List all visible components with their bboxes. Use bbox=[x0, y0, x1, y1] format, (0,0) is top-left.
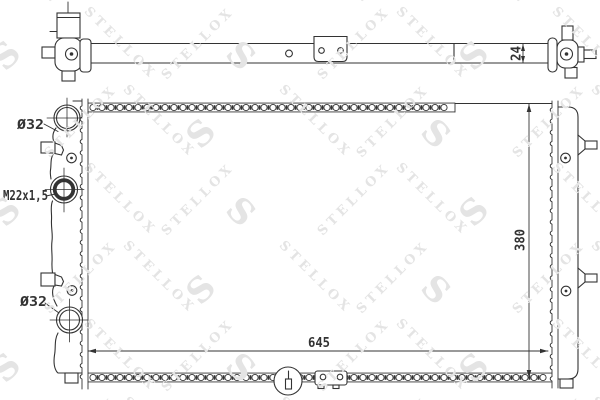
bleed-screw-upper-left bbox=[67, 153, 77, 163]
mounting-flange bbox=[548, 38, 557, 72]
bottom-bracket bbox=[315, 371, 347, 389]
left-foot bbox=[65, 373, 78, 383]
bottom-tab bbox=[62, 71, 75, 81]
right-end-assembly bbox=[548, 26, 596, 78]
front-view: 645 380 Ø32 M22x1,5 Ø32 bbox=[3, 98, 597, 395]
bracket-hole bbox=[337, 374, 343, 380]
bleed-screw-lower-right bbox=[561, 286, 571, 296]
arrowhead bbox=[527, 104, 532, 112]
dimension-depth: 24 bbox=[509, 44, 526, 63]
fitting-pipe-upper bbox=[585, 141, 597, 149]
dim-width-label: 645 bbox=[308, 335, 330, 351]
mounting-flange bbox=[80, 39, 91, 72]
bracket-hole bbox=[319, 48, 325, 54]
top-view-bracket bbox=[314, 37, 347, 62]
right-joint-strip bbox=[550, 101, 558, 388]
bleed-screw-lower-left bbox=[67, 286, 77, 296]
filler-neck-assembly bbox=[42, 2, 91, 81]
arrowhead bbox=[88, 349, 96, 354]
connector-pipe bbox=[584, 50, 596, 59]
mounting-hole bbox=[286, 50, 293, 57]
radiator-technical-drawing: 24 bbox=[0, 0, 600, 400]
side-tab bbox=[42, 47, 55, 58]
fitting-flange-upper bbox=[578, 135, 585, 155]
arrowhead bbox=[540, 349, 548, 354]
drawing-canvas: 24 bbox=[0, 0, 600, 400]
boss bbox=[55, 143, 64, 155]
top-tab bbox=[562, 26, 573, 40]
drain-plug-detail bbox=[274, 367, 302, 395]
dimension-height: 380 bbox=[513, 104, 532, 378]
thread-label: M22x1,5 bbox=[3, 188, 48, 204]
right-tank bbox=[558, 107, 597, 388]
bracket-hole bbox=[338, 48, 344, 54]
filler-neck bbox=[57, 13, 80, 38]
right-foot bbox=[560, 379, 573, 388]
port-top-label: Ø32 bbox=[16, 117, 44, 133]
dimension-width: 645 bbox=[88, 335, 548, 353]
dim-depth-label: 24 bbox=[509, 46, 525, 61]
port-bottom-label: Ø32 bbox=[19, 294, 47, 310]
left-tab-upper bbox=[41, 142, 55, 153]
fitting-pipe-lower bbox=[585, 274, 597, 282]
boss bbox=[55, 275, 64, 287]
bottom-tab bbox=[565, 68, 577, 79]
bleed-screw-upper-right bbox=[561, 153, 571, 163]
bracket-hole bbox=[320, 374, 326, 380]
inlet-port-top bbox=[47, 98, 82, 137]
left-joint-strip bbox=[80, 99, 88, 389]
fitting-flange-lower bbox=[578, 268, 585, 288]
dim-height-label: 380 bbox=[513, 229, 529, 251]
core-top-edge bbox=[88, 103, 455, 112]
left-tab-lower bbox=[41, 273, 55, 286]
top-view: 24 bbox=[42, 2, 596, 81]
connector-base bbox=[578, 47, 584, 62]
